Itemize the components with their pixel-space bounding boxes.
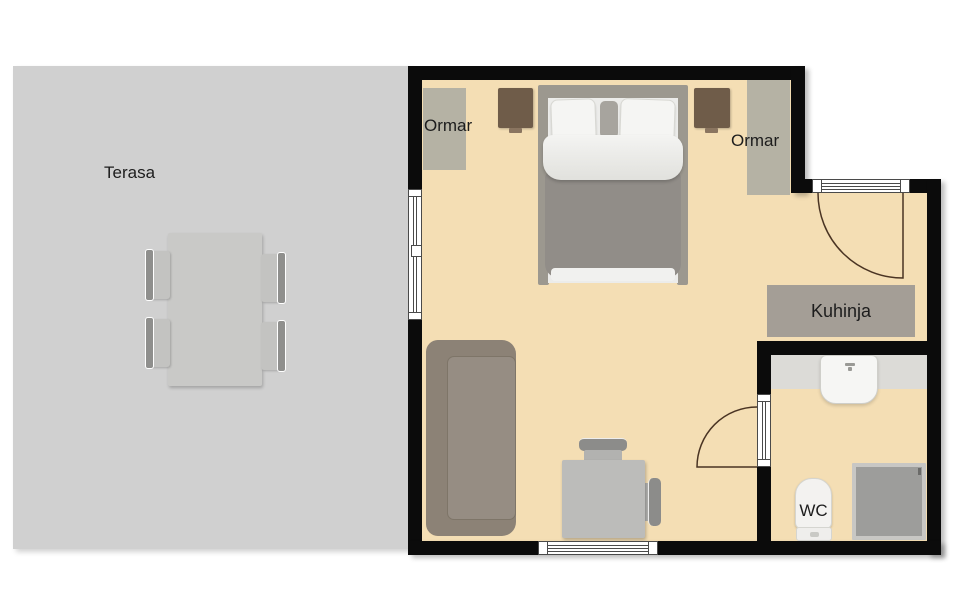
faucet-icon bbox=[845, 363, 855, 366]
wall-top-right-vertical bbox=[791, 66, 805, 193]
window-left bbox=[408, 189, 422, 320]
bed-blanket bbox=[545, 172, 681, 278]
wc-label: WC bbox=[795, 501, 832, 520]
kitchen-label: Kuhinja bbox=[811, 302, 871, 321]
terrace-table bbox=[168, 233, 262, 386]
double-bed bbox=[538, 85, 688, 285]
shower-drain-icon bbox=[918, 468, 921, 475]
faucet-icon bbox=[848, 367, 852, 371]
shower-cabin bbox=[852, 463, 926, 540]
floor-plan: Terasa Kuhinja bbox=[0, 0, 960, 611]
nightstand-left bbox=[498, 88, 533, 128]
sofa-seat bbox=[447, 356, 516, 520]
terrace-chair bbox=[148, 251, 170, 299]
terrace-label: Terasa bbox=[104, 163, 155, 182]
bed-foot-sheet bbox=[551, 268, 675, 281]
bed-center-cushion bbox=[600, 101, 618, 138]
nightstand-right bbox=[694, 88, 730, 128]
desk-chair-right-back bbox=[648, 478, 661, 526]
toilet-tank bbox=[796, 527, 832, 541]
terrace-chair bbox=[148, 319, 170, 367]
wall-bottom bbox=[408, 541, 941, 555]
chair-back bbox=[145, 249, 154, 301]
wall-bathroom-vertical-lower bbox=[757, 467, 771, 541]
kitchen-unit: Kuhinja bbox=[767, 285, 915, 337]
chair-back bbox=[145, 317, 154, 369]
entrance-door-frame bbox=[812, 179, 910, 193]
nightstand-knob bbox=[509, 128, 522, 133]
window-handle bbox=[411, 245, 422, 257]
bed-duvet-fold bbox=[543, 135, 683, 180]
wardrobe-right-label: Ormar bbox=[731, 131, 779, 150]
wardrobe-left-label: Ormar bbox=[424, 116, 472, 135]
bathroom-door-frame bbox=[757, 394, 771, 467]
wall-bathroom-vertical-upper bbox=[757, 341, 771, 394]
terrace-chair bbox=[261, 254, 283, 302]
sofa bbox=[426, 340, 518, 536]
wall-right bbox=[927, 179, 941, 555]
wall-bathroom-horizontal bbox=[757, 341, 941, 355]
chair-back bbox=[277, 320, 286, 372]
nightstand-knob bbox=[705, 128, 718, 133]
toilet-flush-button bbox=[810, 532, 819, 537]
shower-tray bbox=[856, 467, 922, 536]
window-bottom bbox=[538, 541, 658, 555]
terrace-chair bbox=[261, 322, 283, 370]
bathroom-sink bbox=[820, 355, 878, 404]
chair-back bbox=[277, 252, 286, 304]
desk-table bbox=[562, 460, 645, 538]
wall-top bbox=[408, 66, 805, 80]
